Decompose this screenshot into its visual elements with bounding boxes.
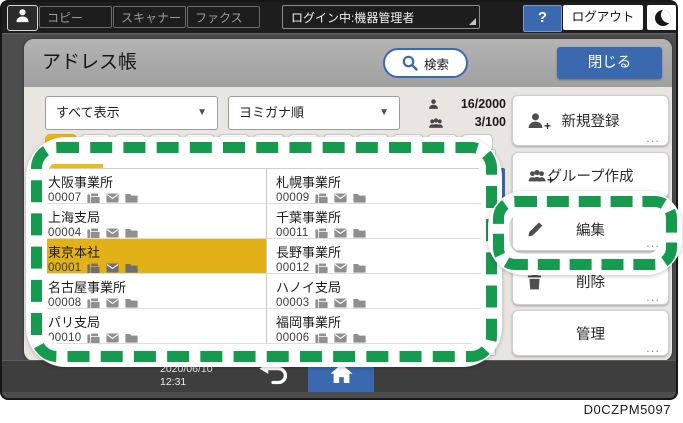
search-button[interactable]: 検索 (383, 48, 468, 78)
more-indicator: ... (646, 340, 660, 355)
help-button[interactable]: ? (523, 5, 562, 32)
user-icon (15, 8, 30, 28)
tab-scanner[interactable]: スキャナー (113, 6, 186, 28)
chevron-down-icon: ▼ (379, 97, 389, 129)
page-title: アドレス帳 (42, 39, 137, 87)
home-icon (330, 364, 353, 389)
panel-header: アドレス帳 検索 閉じる (24, 39, 672, 87)
close-button[interactable]: 閉じる (557, 47, 662, 79)
register-label: 新規登録 (562, 110, 620, 131)
sort-order-value: ヨミガナ順 (239, 105, 304, 120)
search-label: 検索 (424, 54, 449, 73)
crescent-moon-icon (655, 10, 671, 26)
group-counter: 3/100 (428, 113, 506, 131)
view-filter-dropdown[interactable]: すべて表示 ▼ (45, 96, 218, 130)
more-indicator: ... (646, 289, 660, 304)
create-group-label: グループ作成 (547, 165, 633, 186)
search-icon (402, 55, 418, 71)
entry-count-value: 16/2000 (439, 97, 506, 111)
more-indicator: ... (646, 130, 660, 145)
annotation-highlight-list (26, 137, 502, 367)
energy-saver-button[interactable] (647, 5, 678, 30)
tab-copy[interactable]: コピー (39, 6, 112, 28)
top-bar: コピー スキャナー ファクス ログイン中:機器管理者 ? ログアウト (2, 2, 676, 34)
trash-icon (527, 273, 542, 290)
back-arrow-icon (258, 363, 288, 390)
group-count-value: 3/100 (444, 115, 506, 129)
sort-order-dropdown[interactable]: ヨミガナ順 ▼ (228, 96, 400, 130)
person-icon (428, 98, 439, 110)
user-account-button[interactable] (7, 5, 38, 31)
time-value: 12:31 (160, 376, 213, 389)
login-status-dropdown[interactable]: ログイン中:機器管理者 (282, 5, 480, 29)
figure-caption: D0CZPM5097 (584, 402, 671, 417)
view-filter-value: すべて表示 (56, 105, 120, 120)
chevron-down-icon: ▼ (197, 97, 207, 129)
entry-counter: 16/2000 (428, 95, 506, 113)
annotation-highlight-edit-button (488, 191, 682, 275)
logout-button[interactable]: ログアウト (563, 5, 643, 30)
manage-label: 管理 (576, 323, 605, 344)
back-button[interactable] (250, 363, 296, 390)
capacity-counters: 16/2000 3/100 (428, 95, 506, 131)
group-icon (428, 116, 444, 129)
people-plus-icon: + (527, 167, 547, 183)
manage-button[interactable]: 管理 ... (512, 310, 669, 356)
register-button[interactable]: + 新規登録 ... (512, 95, 669, 146)
screenshot-stage: コピー スキャナー ファクス ログイン中:機器管理者 ? ログアウト アドレス帳… (0, 0, 683, 423)
person-plus-icon: + (527, 112, 544, 129)
tab-fax[interactable]: ファクス (187, 6, 260, 28)
